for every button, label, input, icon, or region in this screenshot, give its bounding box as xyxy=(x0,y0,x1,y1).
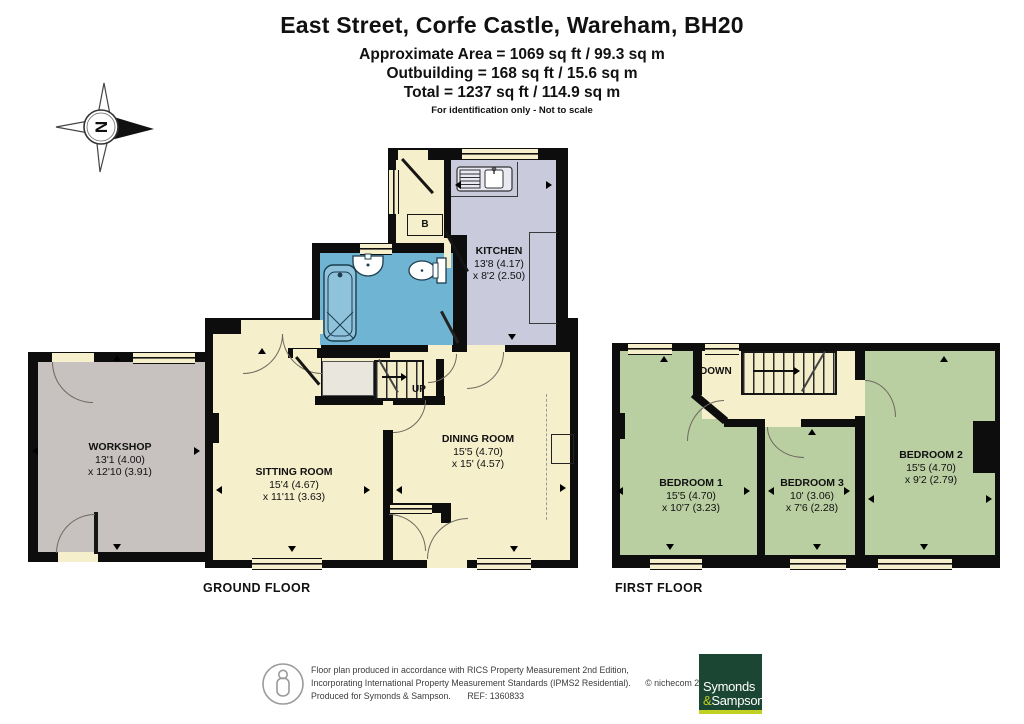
dimension-arrow xyxy=(666,544,674,550)
window xyxy=(133,352,195,364)
dimension-arrow xyxy=(546,181,552,189)
dimension-arrow xyxy=(986,495,992,503)
window xyxy=(790,558,846,570)
dimension-arrow xyxy=(768,487,774,495)
stairs-arrow-icon xyxy=(401,373,407,381)
door-opening xyxy=(383,401,393,430)
toilet-icon xyxy=(407,256,451,286)
wall xyxy=(724,419,765,427)
door-opening xyxy=(52,353,94,362)
boiler-cupboard: B xyxy=(407,214,443,236)
footer-line-3: Produced for Symonds & Sampson. REF: 136… xyxy=(311,690,716,703)
footer-line-1: Floor plan produced in accordance with R… xyxy=(311,664,716,677)
stairs-arrow-icon xyxy=(794,367,800,375)
ground-floor-label: GROUND FLOOR xyxy=(203,581,311,595)
footer-line-2: Incorporating International Property Mea… xyxy=(311,677,716,690)
dimension-arrow xyxy=(396,486,402,494)
logo-accent-strip xyxy=(699,710,762,714)
kitchen-sink-icon xyxy=(456,166,514,193)
stairs-up-label: UP xyxy=(412,384,426,395)
dimension-arrow xyxy=(216,486,222,494)
door-opening xyxy=(58,552,98,562)
wall xyxy=(205,413,219,443)
wall xyxy=(801,419,855,427)
page-title: East Street, Corfe Castle, Wareham, BH20 xyxy=(0,12,1024,39)
room-label-workshop: WORKSHOP 13'1 (4.00) x 12'10 (3.91) xyxy=(88,441,152,479)
window xyxy=(878,558,952,570)
dimension-arrow xyxy=(508,334,516,340)
approximate-area-text: Approximate Area = 1069 sq ft / 99.3 sq … xyxy=(0,46,1024,64)
room-label-sitting-room: SITTING ROOM 15'4 (4.67) x 11'11 (3.63) xyxy=(256,466,333,504)
room-label-bedroom-1: BEDROOM 1 15'5 (4.70) x 10'7 (3.23) xyxy=(659,477,723,515)
boiler-label: B xyxy=(421,219,428,230)
dimension-arrow xyxy=(288,546,296,552)
dimension-arrow xyxy=(813,544,821,550)
logo-text: Symonds &Sampson xyxy=(703,680,764,707)
stairs-arrow-shaft xyxy=(753,370,795,372)
dimension-arrow xyxy=(113,544,121,550)
window xyxy=(462,148,538,160)
window xyxy=(477,558,531,570)
staircase-down xyxy=(741,351,837,395)
room-label-kitchen: KITCHEN 13'8 (4.17) x 8'2 (2.50) xyxy=(473,245,525,283)
understairs-cupboard xyxy=(322,361,374,396)
floorplan-canvas: East Street, Corfe Castle, Wareham, BH20… xyxy=(0,0,1024,724)
window xyxy=(628,343,672,355)
dimension-arrow xyxy=(364,486,370,494)
chimney-breast xyxy=(973,421,1000,473)
window xyxy=(650,558,702,570)
kitchen-counter xyxy=(529,232,557,324)
compass-north-label: N xyxy=(92,121,111,133)
wall xyxy=(451,235,467,345)
person-scale-icon xyxy=(261,661,307,709)
dimension-arrow xyxy=(744,487,750,495)
dimension-arrow xyxy=(868,495,874,503)
room-label-dining-room: DINING ROOM 15'5 (4.70) x 15' (4.57) xyxy=(442,433,514,471)
compass-icon: N xyxy=(52,80,158,176)
fireplace xyxy=(551,434,574,464)
wall xyxy=(855,415,865,568)
dimension-arrow xyxy=(510,546,518,552)
first-floor-label: FIRST FLOOR xyxy=(615,581,703,595)
dimension-arrow xyxy=(940,356,948,362)
ceiling-beam-line xyxy=(546,394,547,520)
bathroom-sink-icon xyxy=(349,253,387,283)
window xyxy=(252,558,322,570)
wall xyxy=(855,343,865,380)
dimension-arrow xyxy=(920,544,928,550)
room-label-bedroom-3: BEDROOM 3 10' (3.06) x 7'6 (2.28) xyxy=(780,477,844,515)
dimension-arrow xyxy=(455,181,461,189)
window xyxy=(390,504,432,514)
reference-number: REF: 1360833 xyxy=(467,691,524,701)
stairs-down-label: DOWN xyxy=(700,366,732,377)
window xyxy=(705,343,739,355)
door-opening xyxy=(765,419,801,427)
dimension-arrow xyxy=(113,355,121,361)
dimension-arrow xyxy=(32,447,38,455)
dimension-arrow xyxy=(844,487,850,495)
dimension-arrow xyxy=(660,356,668,362)
dimension-arrow xyxy=(194,447,200,455)
wall xyxy=(612,413,625,439)
footer-disclaimer: Floor plan produced in accordance with R… xyxy=(311,664,716,703)
dimension-arrow xyxy=(808,429,816,435)
window xyxy=(388,170,399,214)
door-opening xyxy=(855,380,865,416)
french-door-opening xyxy=(241,320,323,334)
room-label-bedroom-2: BEDROOM 2 15'5 (4.70) x 9'2 (2.79) xyxy=(899,449,963,487)
symonds-sampson-logo: Symonds &Sampson xyxy=(699,654,762,714)
stairs-arrow-shaft xyxy=(382,376,402,378)
entrance-door-opening xyxy=(427,558,467,568)
wall xyxy=(441,503,451,523)
dimension-arrow xyxy=(560,484,566,492)
dimension-arrow xyxy=(258,348,266,354)
dimension-arrow xyxy=(617,487,623,495)
